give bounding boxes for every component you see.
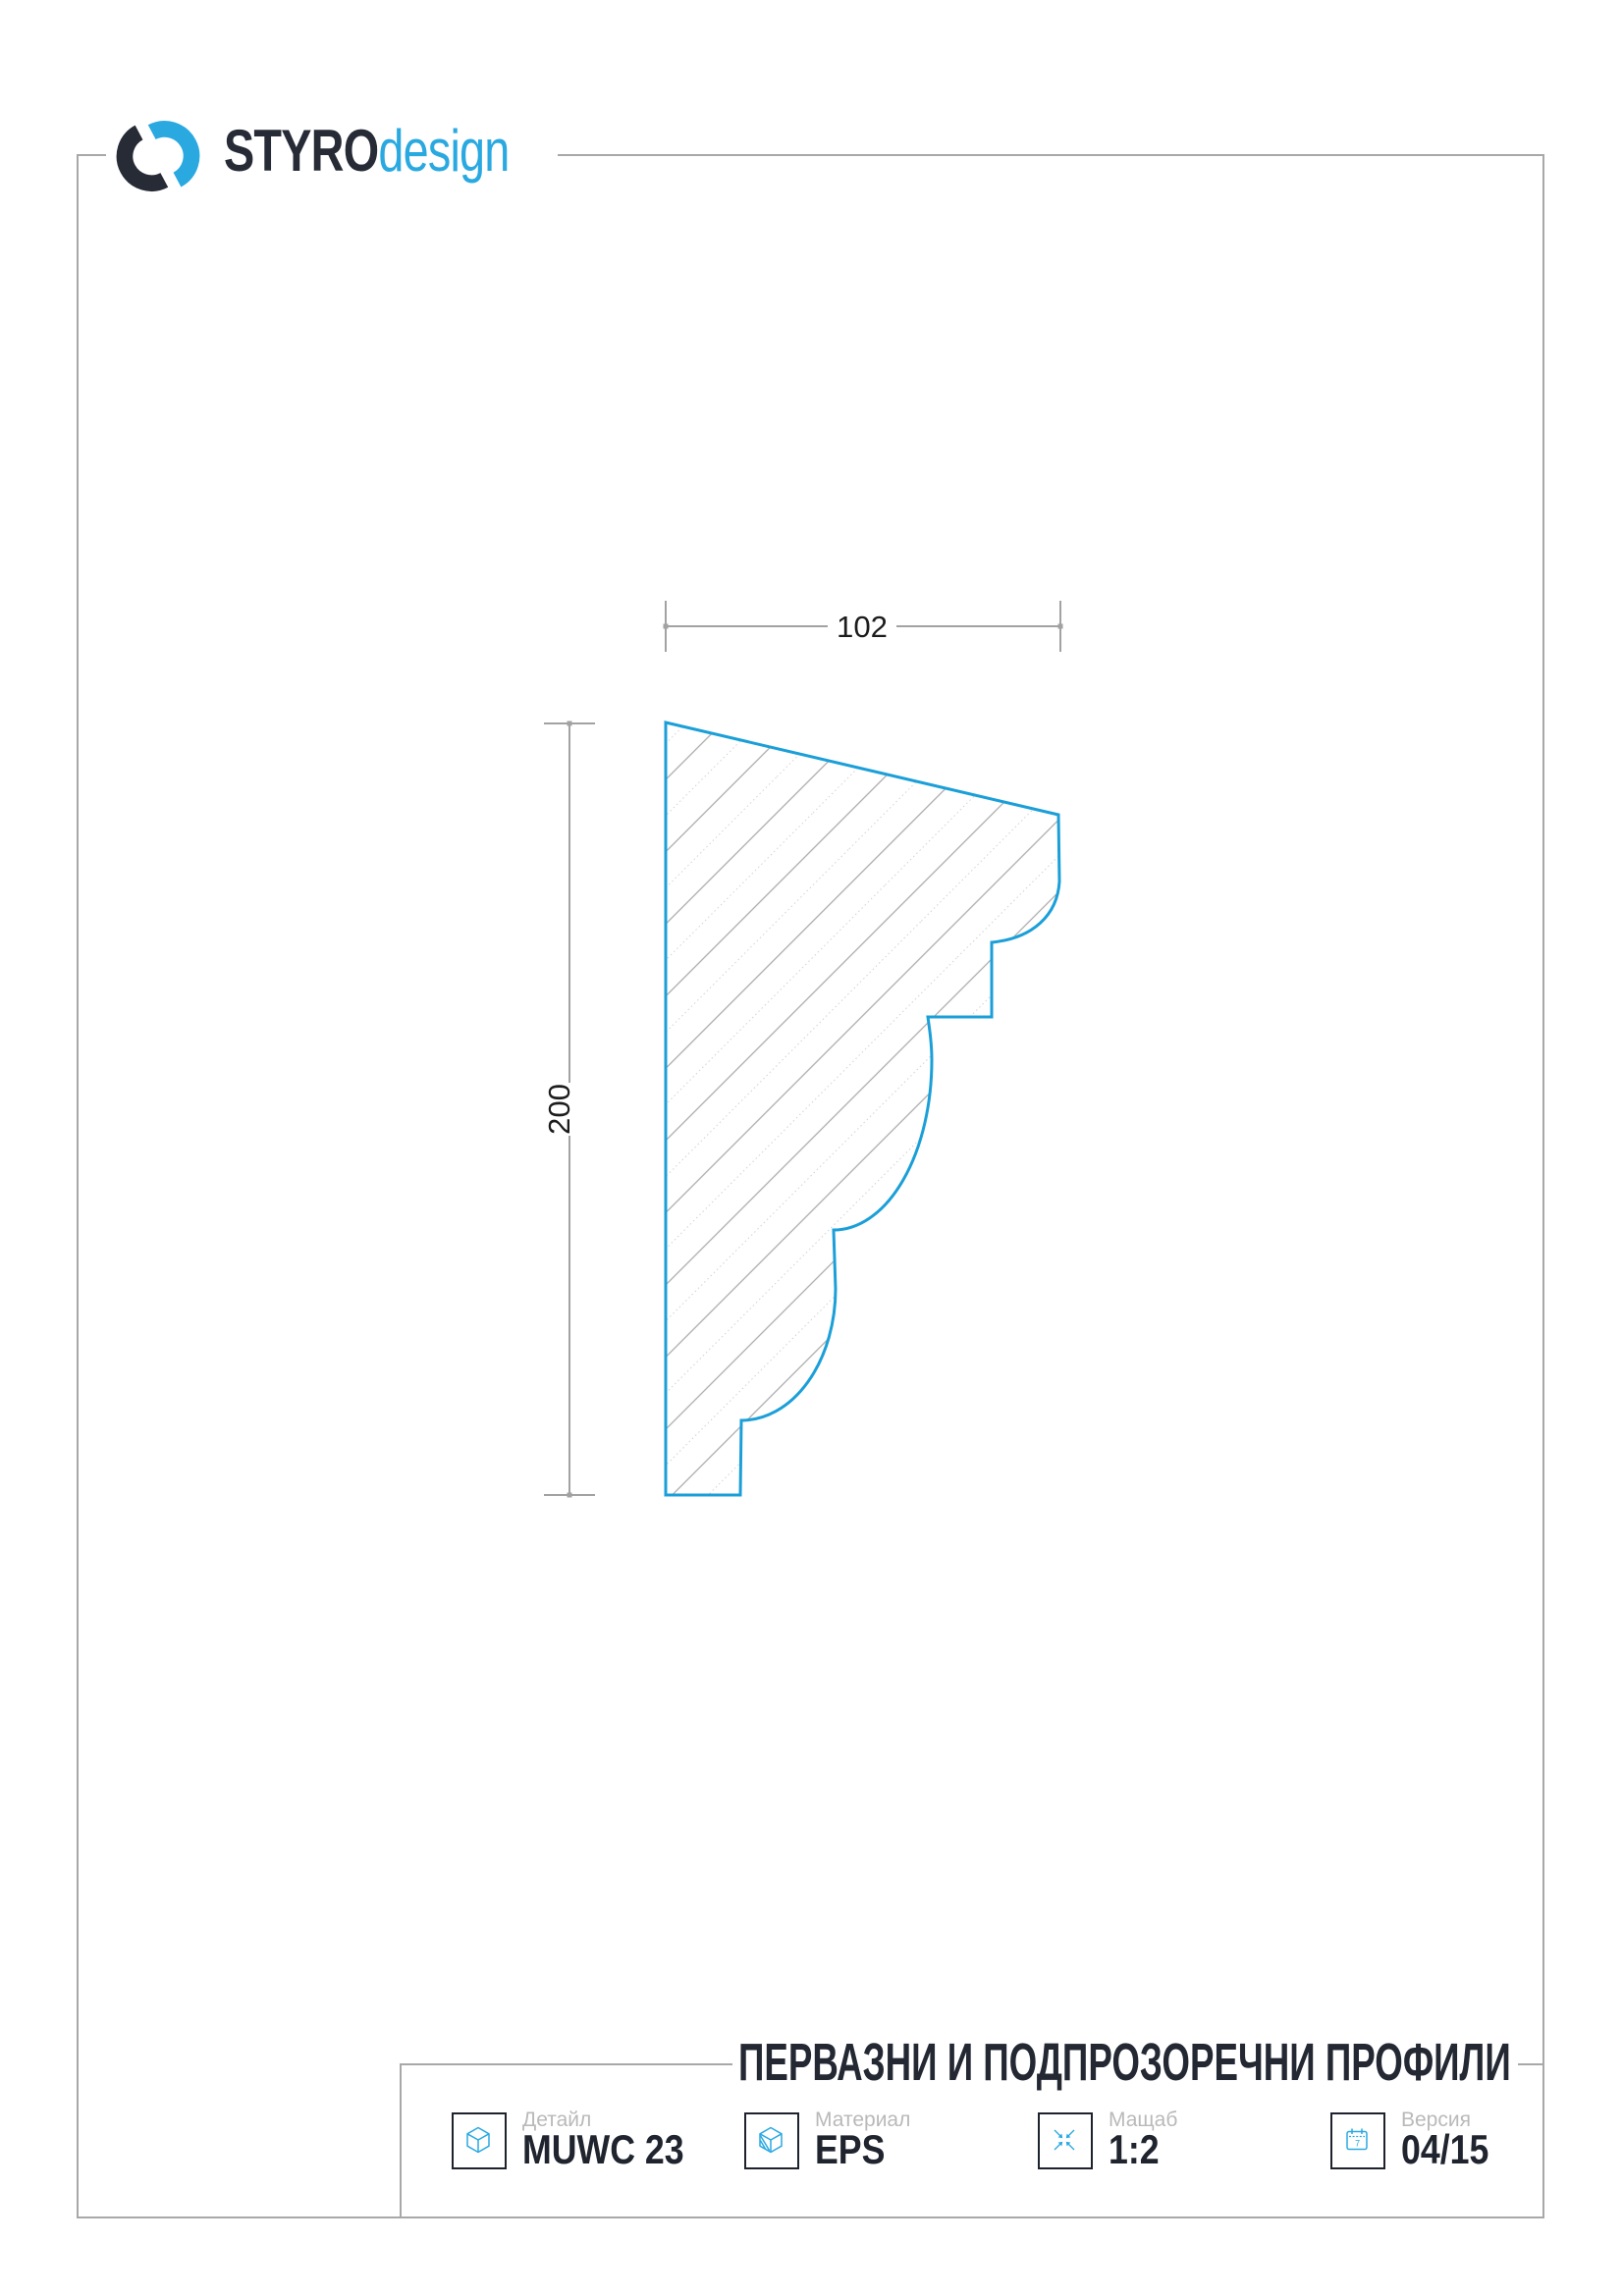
frame-left-line: [77, 154, 79, 2218]
dimension-width-label: 102: [837, 610, 888, 644]
cube-icon: [464, 2125, 492, 2155]
logo-text-styro: STYRO: [224, 118, 378, 184]
logo-text-design: design: [378, 118, 509, 184]
calendar-icon: 7: [1343, 2125, 1371, 2155]
titleblock-top-line-right: [1518, 2063, 1544, 2065]
profile-outline: [666, 722, 1059, 1495]
dimension-height-label: 200: [542, 1084, 576, 1135]
frame-top-line: [558, 154, 1544, 156]
sheet-title: ПЕРВАЗНИ И ПОДПРОЗОРЕЧНИ ПРОФИЛИ: [738, 2034, 1511, 2091]
detail-iconbox: [452, 2112, 507, 2169]
drawing-sheet: STYROdesign 102: [0, 0, 1623, 2296]
scale-icon: [1051, 2125, 1078, 2155]
material-iconbox: [744, 2112, 799, 2169]
logo-wordmark: STYROdesign: [224, 120, 510, 183]
material-value: EPS: [815, 2128, 885, 2171]
detail-value: MUWC 23: [522, 2128, 684, 2171]
titleblock-top-line-left: [400, 2063, 732, 2065]
frame-top-left-stub: [77, 154, 106, 156]
titleblock-left-line: [400, 2063, 402, 2218]
frame-right-line: [1542, 154, 1544, 2218]
scale-value: 1:2: [1109, 2128, 1160, 2171]
calendar-day-label: 7: [1355, 2139, 1360, 2149]
version-iconbox: 7: [1330, 2112, 1385, 2169]
material-cube-icon: [757, 2125, 784, 2155]
version-value: 04/15: [1401, 2128, 1488, 2171]
frame-bottom-line: [77, 2216, 1544, 2218]
styro-logo-icon: [110, 110, 206, 206]
scale-iconbox: [1038, 2112, 1093, 2169]
profile-drawing: 102 200: [511, 569, 1119, 1541]
